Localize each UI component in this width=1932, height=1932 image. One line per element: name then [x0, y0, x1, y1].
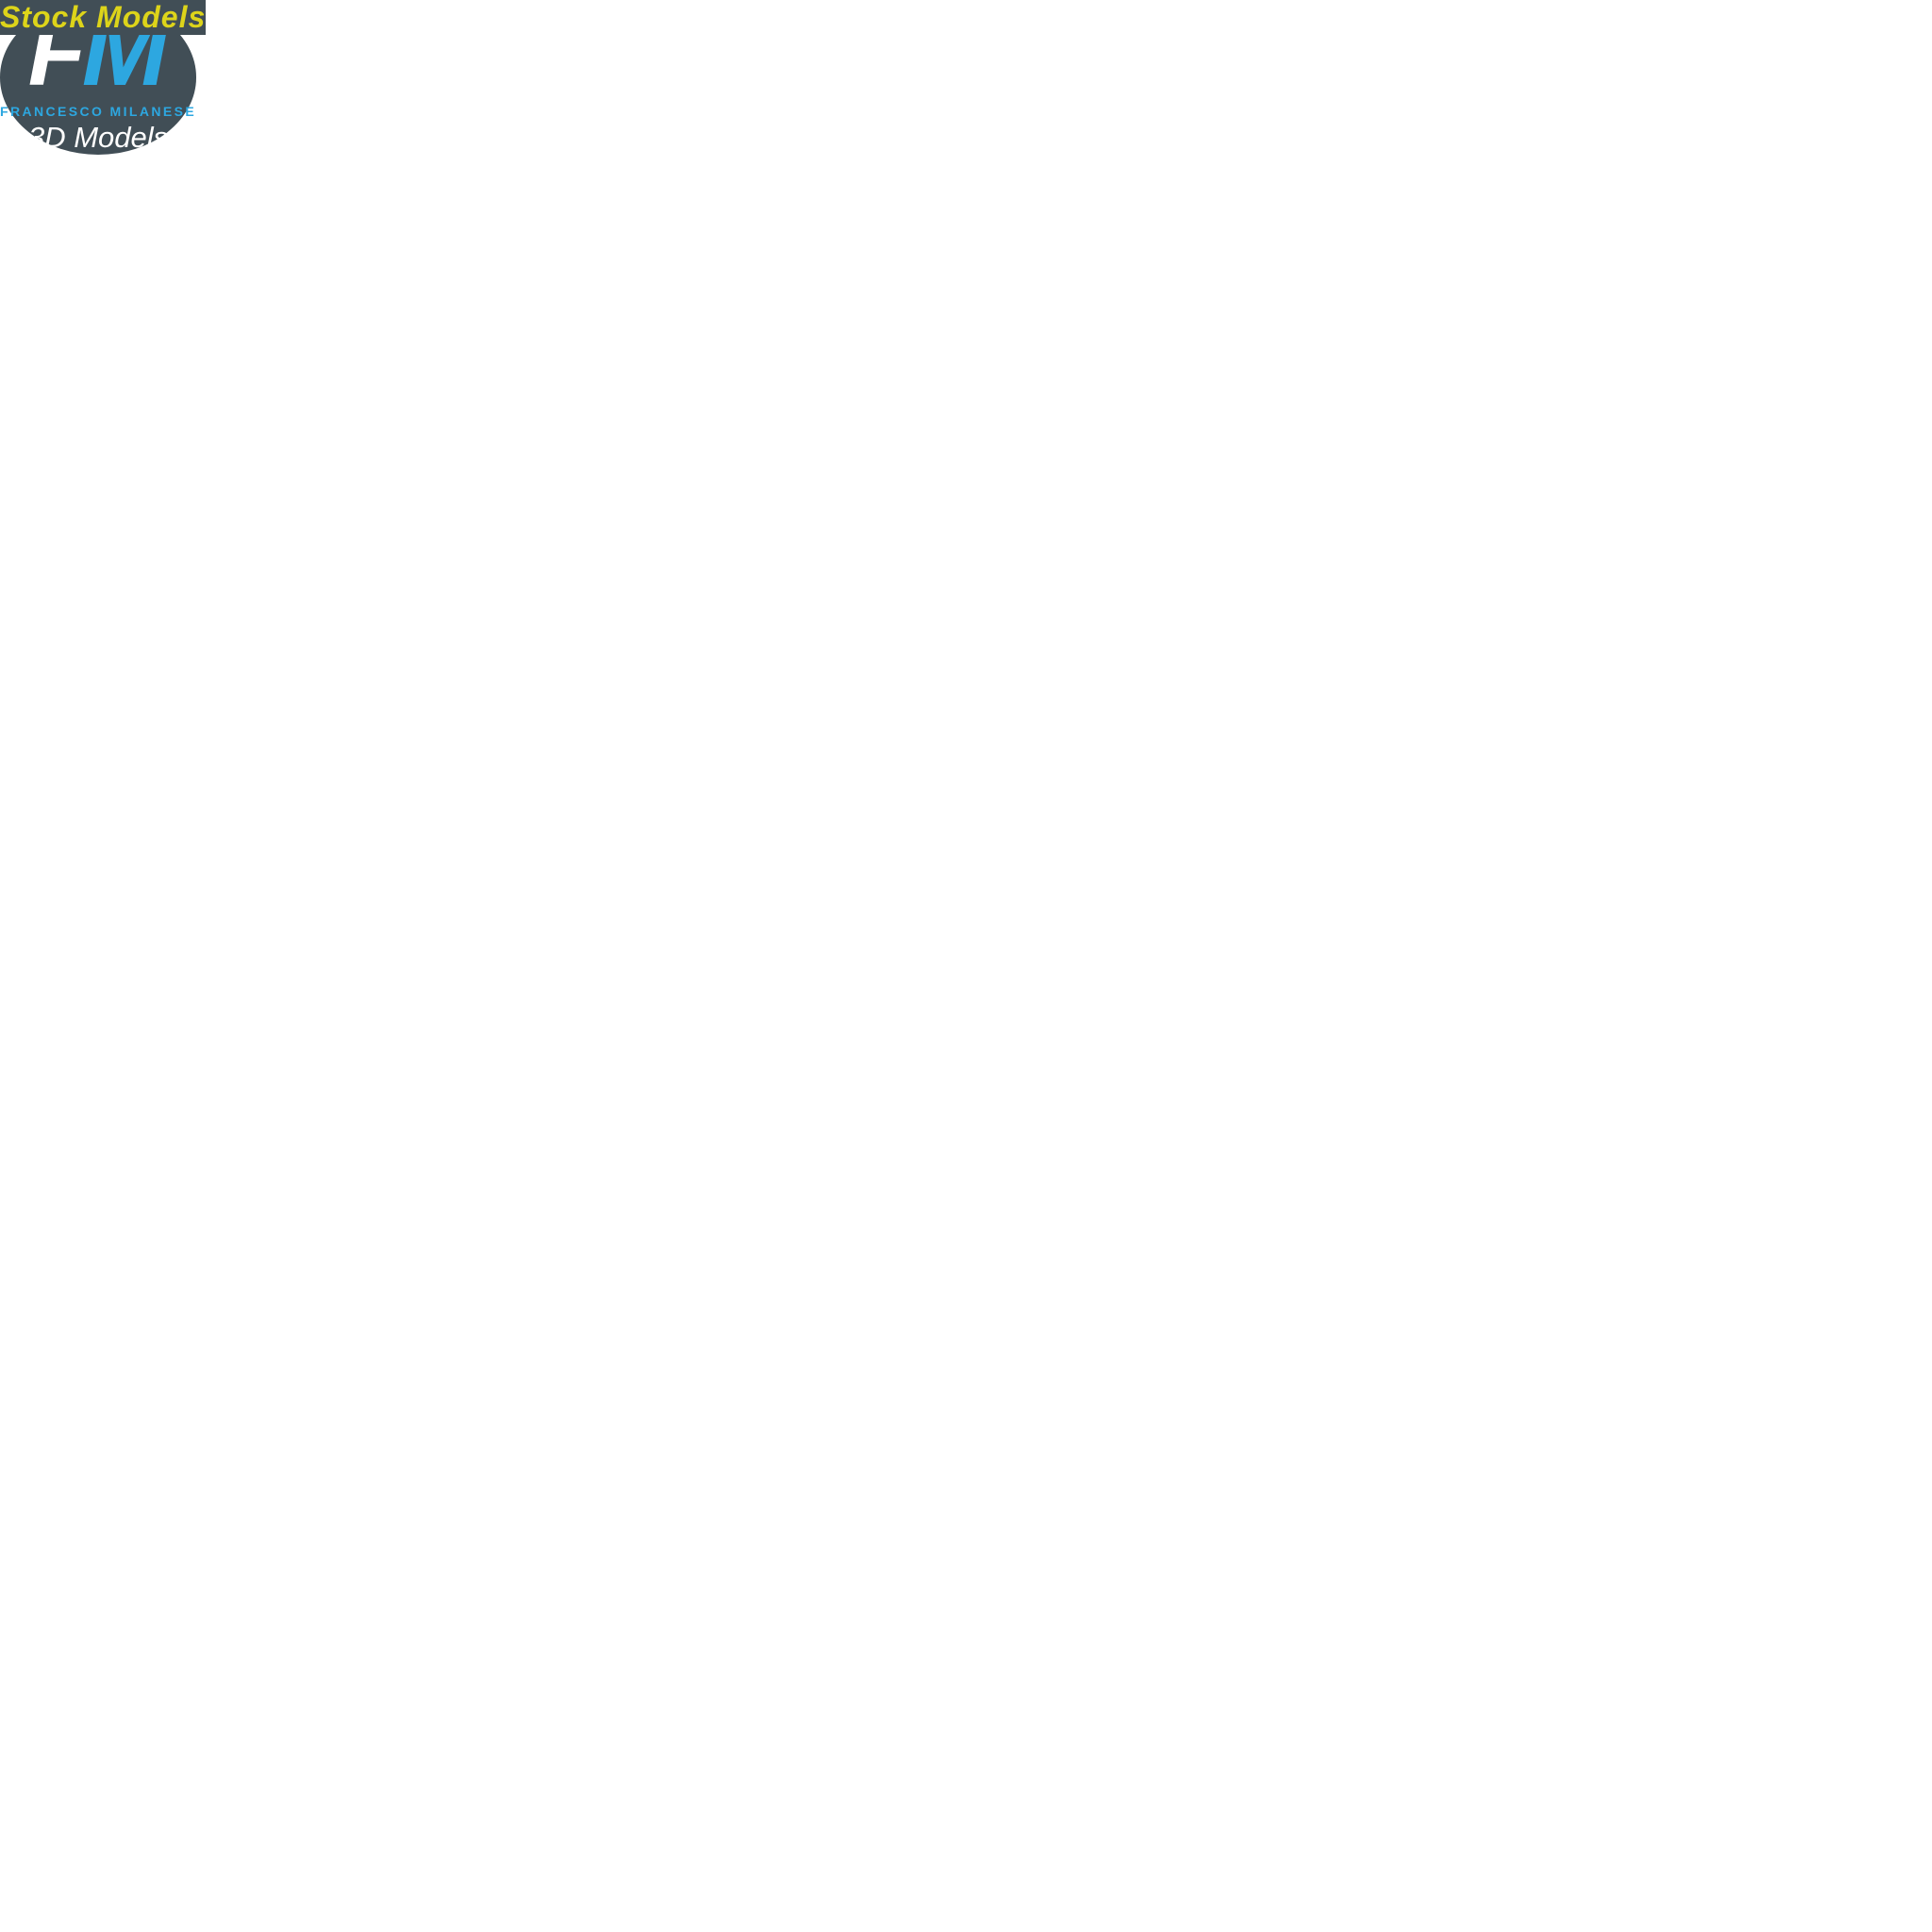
wireframe-svg	[0, 0, 1932, 1932]
watermark-banner: Stock Models	[0, 0, 206, 35]
wireframe-sheet: FM FRANCESCO MILANESE 3D Models Stock Mo…	[0, 0, 1932, 1932]
watermark-subtitle: 3D Models	[28, 121, 168, 155]
watermark-author: FRANCESCO MILANESE	[0, 104, 196, 119]
watermark-banner-label: Stock Models	[0, 0, 206, 35]
